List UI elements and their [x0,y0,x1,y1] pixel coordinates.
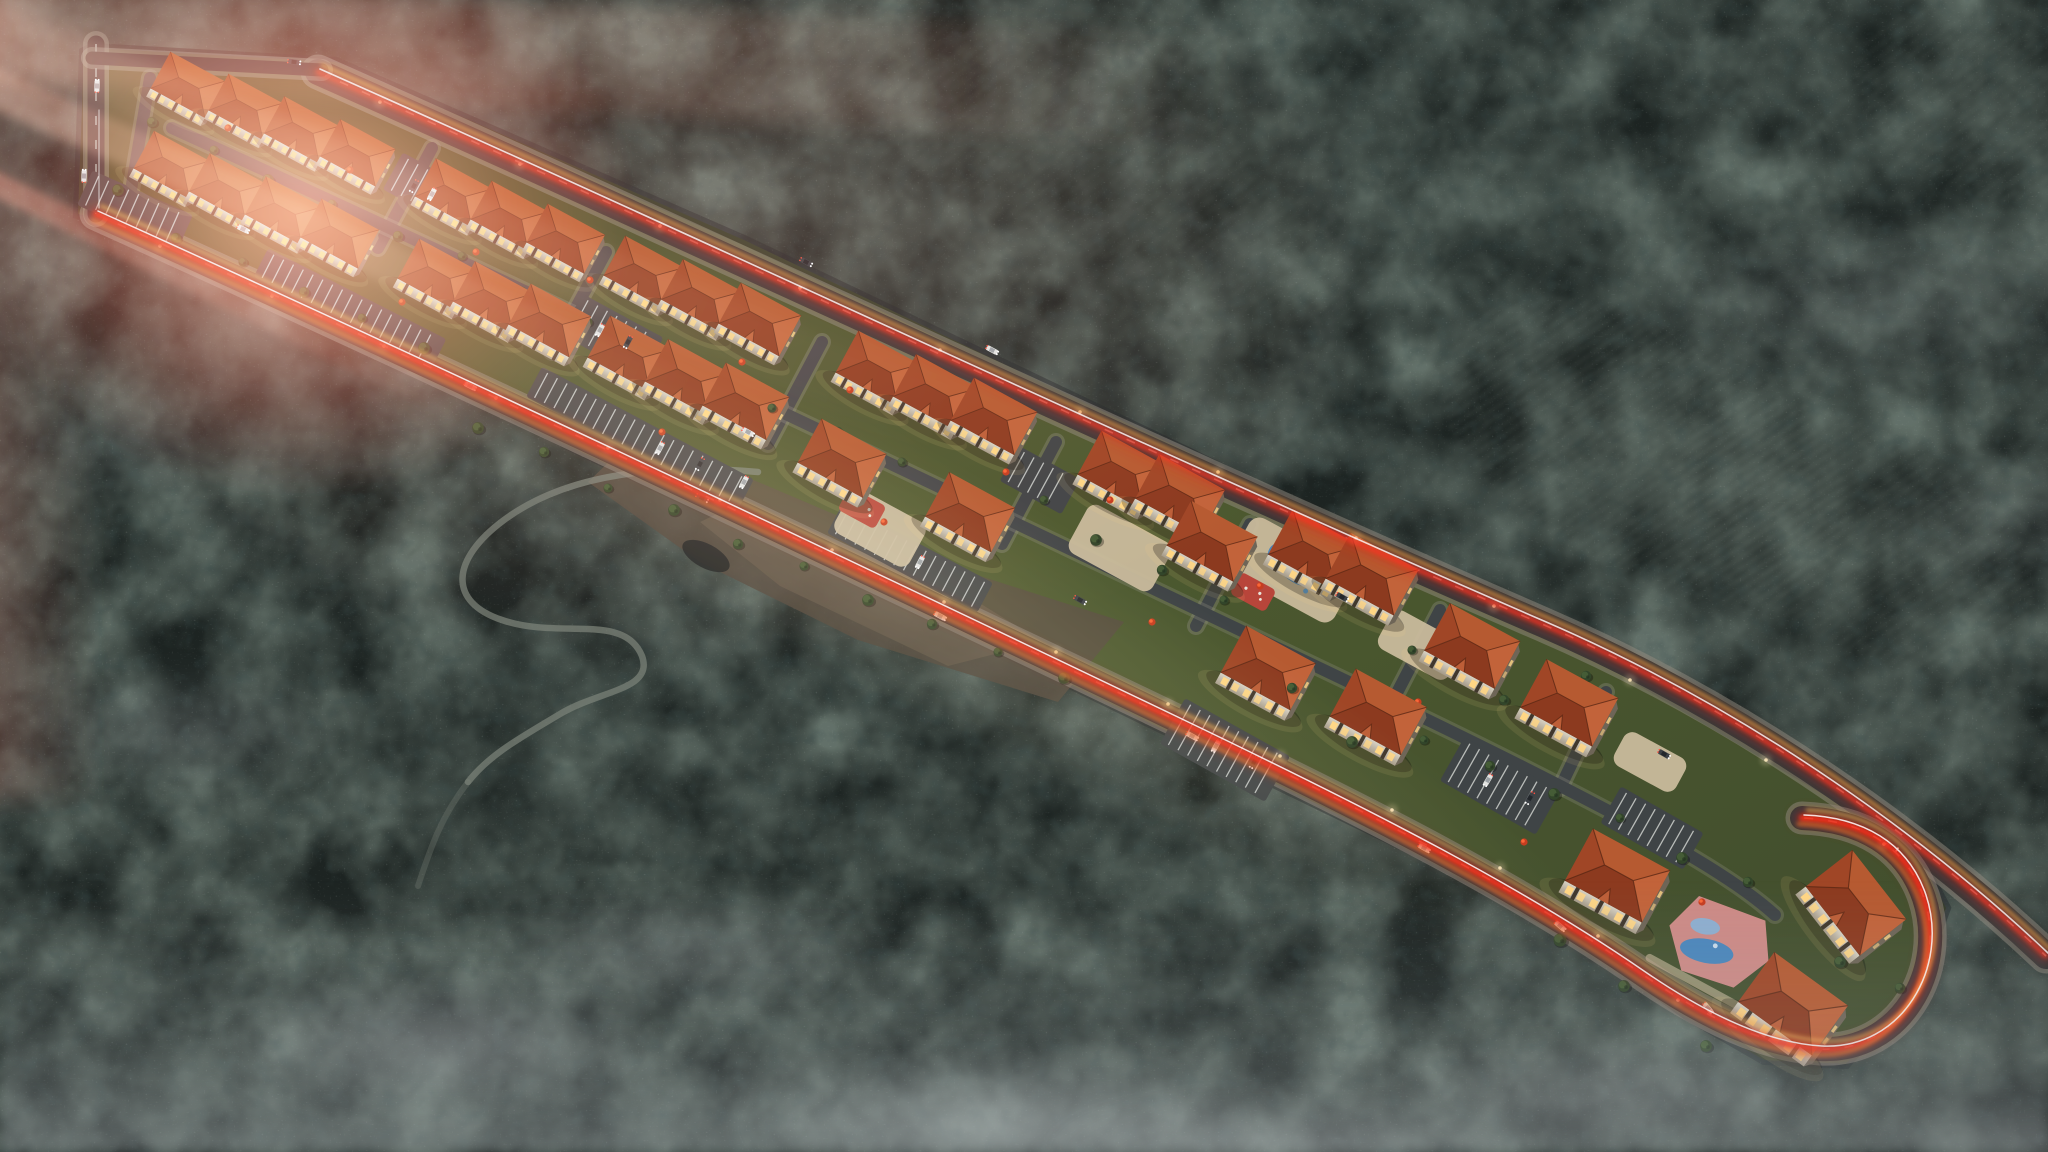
vignette [0,0,2048,1152]
aerial-site-render [0,0,2048,1152]
